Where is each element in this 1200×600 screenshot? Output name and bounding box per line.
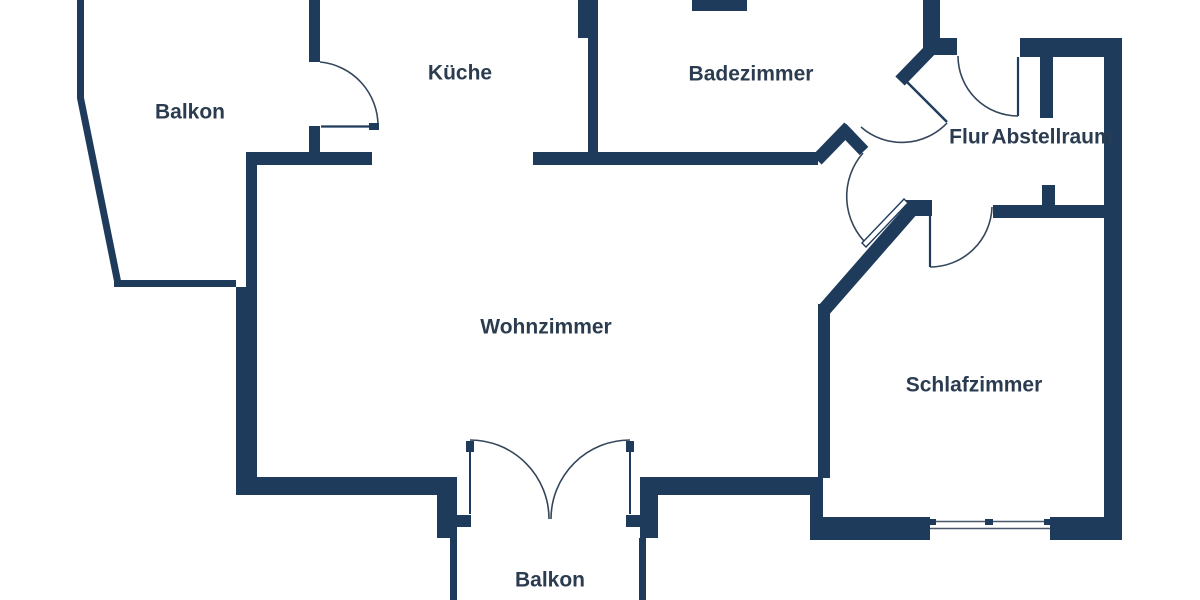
- wall-flur-abstellraum-divider-upper: [1040, 57, 1053, 118]
- room-label-flur: Flur: [949, 126, 989, 149]
- room-label-wohnzimmer: Wohnzimmer: [480, 316, 611, 339]
- wall-wohnzimmer-south-left: [236, 477, 457, 495]
- room-label-badezimmer: Badezimmer: [689, 63, 814, 86]
- floor-plan-canvas: Balkon Küche Badezimmer Flur Abstellraum…: [0, 0, 1200, 600]
- wall-schlafzimmer-south-left: [810, 517, 930, 540]
- wall-wohnzimmer-left-lower: [236, 287, 257, 495]
- room-label-balkon-bottom: Balkon: [515, 569, 585, 592]
- room-label-balkon-top: Balkon: [155, 101, 225, 124]
- room-label-kueche: Küche: [428, 62, 492, 85]
- floor-plan-background: [0, 0, 1200, 600]
- wall-kueche-south-left: [247, 152, 372, 165]
- wall-balcony-door-jamb-right: [640, 495, 658, 538]
- wall-wohnzimmer-left-upper: [246, 152, 257, 292]
- window-tick-right: [1044, 519, 1054, 525]
- wall-flur-abstellraum-divider-stub: [1042, 185, 1055, 205]
- wall-kueche-bad-south-right: [533, 152, 818, 165]
- window-tick-left: [926, 519, 936, 525]
- door-leaf-tip-balkon-right: [626, 441, 634, 452]
- wall-balcony-door-jamb-left: [437, 495, 457, 538]
- wall-entrance-foot: [940, 38, 957, 55]
- wall-kueche-west-upper: [309, 0, 320, 62]
- wall-balcony-bottom-parapet-right: [639, 538, 646, 600]
- wall-badezimmer-top-stub: [692, 0, 747, 11]
- door-leaf-tip-balkon-left: [466, 441, 474, 452]
- wall-kueche-west-lower: [309, 126, 320, 155]
- room-label-abstellraum: Abstellraum: [991, 126, 1112, 149]
- wall-kueche-bad-divider: [588, 0, 598, 162]
- wall-balcony-bottom-parapet-left: [450, 538, 457, 600]
- room-label-schlafzimmer: Schlafzimmer: [906, 374, 1043, 397]
- wall-wohnzimmer-south-right: [640, 477, 818, 495]
- window-tick-middle: [985, 519, 993, 525]
- wall-abstellraum-top: [1020, 38, 1122, 57]
- door-leaf-tip-kueche-balkon: [369, 123, 379, 130]
- wall-balcony-door-notch-right: [626, 515, 640, 527]
- wall-east-exterior: [1104, 38, 1122, 540]
- wall-schlafzimmer-west: [818, 304, 830, 478]
- wall-flur-abstellraum-south: [993, 205, 1105, 218]
- wall-balcony-door-notch-left: [457, 515, 471, 527]
